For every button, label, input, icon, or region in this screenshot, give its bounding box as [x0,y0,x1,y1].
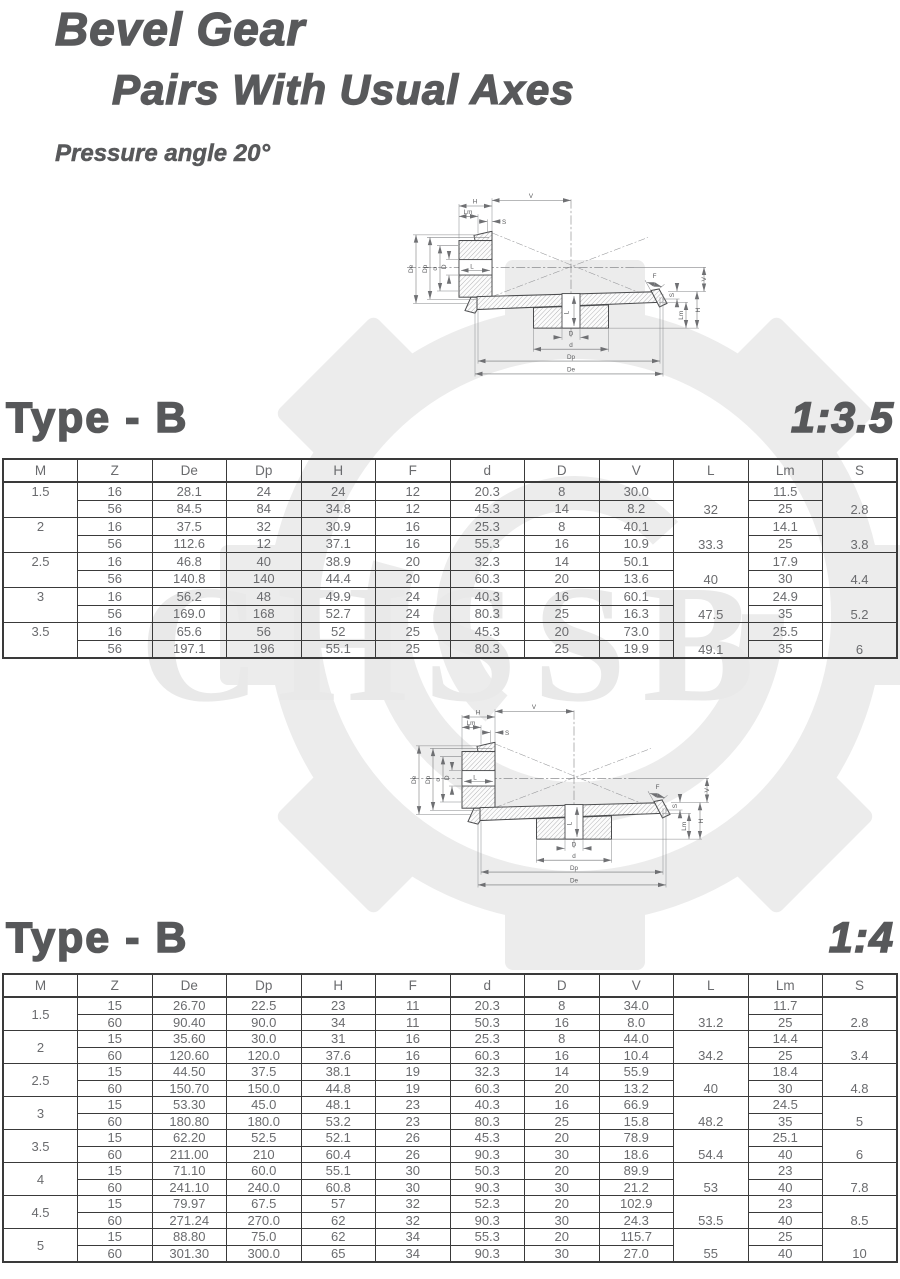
table-row: 5684.58434.81245.3148.225 [3,500,897,518]
cell: 34.0 [599,997,674,1014]
cell: 13.2 [599,1080,674,1097]
catalog-page: { "header": { "title_line1": "Bevel Gear… [0,0,900,1274]
header-row: MZDeDpHFdDVLLmS [3,459,897,482]
cell: 32.3 [450,553,525,571]
cell: 150.70 [152,1080,227,1097]
cell: 25.1 [748,1130,823,1147]
cell: 16 [78,623,153,641]
cell: 55.1 [301,1163,376,1180]
cell: 102.9 [599,1196,674,1213]
cell: 11.7 [748,997,823,1014]
cell: 210 [227,1146,302,1163]
cell: 19 [376,1064,451,1081]
cell: 32 [376,1212,451,1229]
dim-label-s-top: S [502,219,506,226]
dim-label-v-right: V [704,787,711,792]
cell: 24 [376,605,451,623]
dim-label-lm-top: Lm [464,209,473,216]
cell: 28.1 [152,482,227,500]
dim-label-D-left: D [441,264,448,269]
bevel-gear-drawing: L L V H Lm S [401,188,709,394]
cell: 32 [674,482,749,518]
cell: 60 [78,1179,153,1196]
cell: 27.0 [599,1245,674,1262]
column-header-S: S [823,459,898,482]
cell: 90.3 [450,1245,525,1262]
cell: 5 [823,1097,898,1130]
cell: 32.3 [450,1064,525,1081]
cell: 40.3 [450,588,525,606]
cell: 60 [78,1212,153,1229]
cell: 35 [748,640,823,658]
cell: 18.4 [748,1064,823,1081]
cell: 89.9 [599,1163,674,1180]
cell: 62.20 [152,1130,227,1147]
gear-table-1-4: MZDeDpHFdDVLLmS 1.51526.7022.5231120.383… [2,973,898,1263]
cell: 80.3 [450,605,525,623]
cell: 140 [227,570,302,588]
cell: 23 [301,997,376,1014]
cell: 18.6 [599,1146,674,1163]
cell: 197.1 [152,640,227,658]
cell: 45.3 [450,1130,525,1147]
cell: 38.1 [301,1064,376,1081]
column-header-Dp: Dp [227,459,302,482]
cell: 84.5 [152,500,227,518]
cell: 2 [3,518,78,553]
dim-label-de-left: De [411,775,418,784]
cell: 55.3 [450,535,525,553]
cell: 90.3 [450,1146,525,1163]
cell: 75.0 [227,1229,302,1246]
table-row: 4.51579.9767.5573252.320102.953.5238.5 [3,1196,897,1213]
page-title-line2: Pairs With Usual Axes [112,66,575,114]
cell: 16 [376,535,451,553]
page-title-line1: Bevel Gear [55,2,305,56]
cell: 301.30 [152,1245,227,1262]
cell: 45.3 [450,623,525,641]
cell: 35 [748,605,823,623]
gear-section: L [480,800,670,839]
dim-label-lm-top: Lm [467,720,476,727]
cell: 20 [525,623,600,641]
cell: 60 [78,1245,153,1262]
cell: 24 [376,588,451,606]
table-row: 60301.30300.0653490.33027.040 [3,1245,897,1262]
cell: 20 [525,1229,600,1246]
cell: 10.4 [599,1047,674,1064]
cell: 271.24 [152,1212,227,1229]
dim-label-h-right: H [698,818,705,823]
bevel-gear-drawing: L L V H Lm S [404,699,712,905]
cell: 25 [748,1229,823,1246]
cell: 4.8 [823,1064,898,1097]
column-header-Lm: Lm [748,459,823,482]
cell: 19 [376,1080,451,1097]
cell: 8 [525,997,600,1014]
cell: 34 [301,1014,376,1031]
column-header-D: D [525,974,600,997]
cell: 60.4 [301,1146,376,1163]
table-row: 3.51665.656522545.32073.049.125.56 [3,623,897,641]
column-header-De: De [152,974,227,997]
dim-label-f-right: F [656,784,660,791]
cell: 16 [525,1097,600,1114]
cell: 1.5 [3,997,78,1031]
table-row: 1.51526.7022.5231120.3834.031.211.72.8 [3,997,897,1014]
cell: 20 [525,1196,600,1213]
cell: 120.0 [227,1047,302,1064]
cell: 16 [525,535,600,553]
cell: 32 [376,1196,451,1213]
cell: 53.30 [152,1097,227,1114]
cell: 35.60 [152,1031,227,1048]
cell: 53 [674,1163,749,1196]
cell: 15 [78,1130,153,1147]
cell: 65.6 [152,623,227,641]
cell: 48.1 [301,1097,376,1114]
cell: 15 [78,1196,153,1213]
cell: 35 [748,1113,823,1130]
column-header-Z: Z [78,974,153,997]
section-head-1: Type - B 1:3.5 [6,394,894,443]
cell: 55.1 [301,640,376,658]
cell: 60 [78,1146,153,1163]
cell: 80.3 [450,640,525,658]
cell: 8 [525,1031,600,1048]
cell: 40 [748,1212,823,1229]
cell: 40.1 [599,518,674,536]
cell: 55.9 [599,1064,674,1081]
column-header-Lm: Lm [748,974,823,997]
table-row: 21637.53230.91625.3840.133.314.13.8 [3,518,897,536]
column-header-M: M [3,459,78,482]
table-row: 2.51646.84038.92032.31450.14017.94.4 [3,553,897,571]
cell: 2.5 [3,1064,78,1097]
cell: 37.1 [301,535,376,553]
cell: 56 [78,570,153,588]
cell: 32 [227,518,302,536]
cell: 60 [78,1014,153,1031]
dim-label-h-right: H [695,307,702,312]
cell: 44.50 [152,1064,227,1081]
cell: 90.3 [450,1179,525,1196]
cell: 40 [748,1245,823,1262]
cell: 5.2 [823,588,898,623]
cell: 52.5 [227,1130,302,1147]
cell: 30 [748,1080,823,1097]
cell: 23 [376,1097,451,1114]
cell: 211.00 [152,1146,227,1163]
cell: 30 [525,1179,600,1196]
cell: 16 [525,588,600,606]
cell: 16.3 [599,605,674,623]
column-header-d: d [450,974,525,997]
cell: 23 [748,1196,823,1213]
cell: 17.9 [748,553,823,571]
cell: 49.9 [301,588,376,606]
cell: 6 [823,1130,898,1163]
cell: 30 [525,1212,600,1229]
cell: 8 [525,482,600,500]
cell: 12 [376,500,451,518]
cell: 25.3 [450,1031,525,1048]
cell: 50.3 [450,1163,525,1180]
cell: 300.0 [227,1245,302,1262]
cell: 24.3 [599,1212,674,1229]
dim-label-de-bottom: De [570,878,578,885]
cell: 30 [376,1163,451,1180]
cell: 240.0 [227,1179,302,1196]
cell: 19.9 [599,640,674,658]
cell: 30 [748,570,823,588]
cell: 241.10 [152,1179,227,1196]
cell: 23 [376,1113,451,1130]
dim-label-h-top: H [476,710,481,717]
cell: 169.0 [152,605,227,623]
cell: 25 [748,500,823,518]
dim-label-f-right: F [653,273,657,280]
cell: 4.4 [823,553,898,588]
table-row: 56197.119655.12580.32519.935 [3,640,897,658]
cell: 140.8 [152,570,227,588]
cell: 60 [78,1080,153,1097]
dim-label-d-bottom: d [569,342,573,349]
cell: 60.1 [599,588,674,606]
table-row: 3.51562.2052.552.12645.32078.954.425.16 [3,1130,897,1147]
cell: 56 [227,623,302,641]
cell: 67.5 [227,1196,302,1213]
column-header-De: De [152,459,227,482]
cell: 3.5 [3,1130,78,1163]
cell: 50.3 [450,1014,525,1031]
cell: 6 [823,623,898,659]
cell: 52 [301,623,376,641]
cell: 15 [78,1163,153,1180]
table-row: 56169.016852.72480.32516.335 [3,605,897,623]
cell: 53.2 [301,1113,376,1130]
cell: 34.8 [301,500,376,518]
cell: 46.8 [152,553,227,571]
dim-label-lm-right: Lm [681,822,688,831]
cell: 60 [78,1113,153,1130]
cell: 30.0 [227,1031,302,1048]
cell: 3 [3,1097,78,1130]
table-row: 60211.0021060.42690.33018.640 [3,1146,897,1163]
type-heading-1: Type - B [6,394,188,443]
header-row: MZDeDpHFdDVLLmS [3,974,897,997]
cell: 1.5 [3,482,78,518]
cell: 2.8 [823,997,898,1031]
cell: 20.3 [450,997,525,1014]
cell: 3 [3,588,78,623]
cell: 196 [227,640,302,658]
cell: 78.9 [599,1130,674,1147]
cell: 21.2 [599,1179,674,1196]
column-header-F: F [376,459,451,482]
cell: 14.1 [748,518,823,536]
cell: 33.3 [674,518,749,553]
dim-label-dp-bottom: Dp [570,865,578,872]
cell: 88.80 [152,1229,227,1246]
cell: 40 [674,1064,749,1097]
pressure-angle-subtitle: Pressure angle 20° [55,140,270,168]
cell: 24.5 [748,1097,823,1114]
cell: 4 [3,1163,78,1196]
dim-label-pinion-bore: L [473,775,477,782]
dim-label-s-right: S [672,804,679,808]
cell: 8.2 [599,500,674,518]
column-header-V: V [599,459,674,482]
cell: 44.0 [599,1031,674,1048]
cell: 14 [525,500,600,518]
cell: 26 [376,1146,451,1163]
cell: 112.6 [152,535,227,553]
cell: 25 [376,640,451,658]
cell: 56 [78,500,153,518]
cell: 15 [78,1031,153,1048]
cell: 20 [525,570,600,588]
dim-label-d-bottom: d [572,853,576,860]
cell: 16 [376,1031,451,1048]
column-header-V: V [599,974,674,997]
cell: 38.9 [301,553,376,571]
cell: 180.80 [152,1113,227,1130]
cell: 60.3 [450,570,525,588]
cell: 11 [376,997,451,1014]
table-row: 6090.4090.0341150.3168.025 [3,1014,897,1031]
cell: 73.0 [599,623,674,641]
dim-label-de-left: De [408,264,415,273]
table-row: 56140.814044.42060.32013.630 [3,570,897,588]
cell: 16 [78,482,153,500]
cell: 37.5 [227,1064,302,1081]
table-row: 2.51544.5037.538.11932.31455.94018.44.8 [3,1064,897,1081]
cell: 52.3 [450,1196,525,1213]
cell: 44.4 [301,570,376,588]
gear-section: L [477,289,667,328]
dim-label-lm-right: Lm [678,311,685,320]
cell: 25 [748,535,823,553]
table-row: 60241.10240.060.83090.33021.240 [3,1179,897,1196]
cell: 57 [301,1196,376,1213]
cell: 40.3 [450,1097,525,1114]
cell: 30.0 [599,482,674,500]
column-header-F: F [376,974,451,997]
table-body: 1.51628.124241220.3830.03211.52.85684.58… [3,482,897,658]
table-row: 21535.6030.0311625.3844.034.214.43.4 [3,1031,897,1048]
cell: 37.6 [301,1047,376,1064]
column-header-H: H [301,974,376,997]
cell: 26.70 [152,997,227,1014]
cell: 3.8 [823,518,898,553]
cell: 180.0 [227,1113,302,1130]
cell: 14.4 [748,1031,823,1048]
cell: 3.4 [823,1031,898,1064]
table-row: 60180.80180.053.22380.32515.835 [3,1113,897,1130]
cell: 34 [376,1245,451,1262]
table-row: 1.51628.124241220.3830.03211.52.8 [3,482,897,500]
cell: 4.5 [3,1196,78,1229]
cell: 16 [525,1047,600,1064]
cell: 56 [78,605,153,623]
cell: 56 [78,640,153,658]
cell: 8 [525,518,600,536]
dim-label-d-left: d [432,267,439,271]
cell: 15 [78,997,153,1014]
cell: 30 [525,1245,600,1262]
cell: 10.9 [599,535,674,553]
cell: 15 [78,1229,153,1246]
cell: 56 [78,535,153,553]
cell: 84 [227,500,302,518]
cell: 66.9 [599,1097,674,1114]
column-header-Z: Z [78,459,153,482]
cell: 16 [376,518,451,536]
cell: 16 [376,1047,451,1064]
cell: 37.5 [152,518,227,536]
cell: 62 [301,1212,376,1229]
table-row: 51588.8075.0623455.320115.7552510 [3,1229,897,1246]
table-row: 31656.24849.92440.31660.147.524.95.2 [3,588,897,606]
cell: 40 [748,1179,823,1196]
column-header-M: M [3,974,78,997]
cell: 15 [78,1064,153,1081]
cell: 31.2 [674,997,749,1031]
cell: 48.2 [674,1097,749,1130]
table-row: 60120.60120.037.61660.31610.425 [3,1047,897,1064]
cell: 13.6 [599,570,674,588]
cell: 25 [525,1113,600,1130]
cell: 11 [376,1014,451,1031]
cell: 25 [376,623,451,641]
cell: 14 [525,1064,600,1081]
cell: 71.10 [152,1163,227,1180]
table-row: 41571.1060.055.13050.32089.953237.8 [3,1163,897,1180]
column-header-d: d [450,459,525,482]
cell: 49.1 [674,623,749,659]
cell: 44.8 [301,1080,376,1097]
cell: 22.5 [227,997,302,1014]
cell: 20 [525,1163,600,1180]
cell: 31 [301,1031,376,1048]
cell: 60.0 [227,1163,302,1180]
cell: 55 [674,1229,749,1263]
table-row: 60271.24270.0623290.33024.340 [3,1212,897,1229]
cell: 20 [525,1130,600,1147]
dim-label-dp-left: Dp [425,775,432,784]
cell: 62 [301,1229,376,1246]
cell: 16 [525,1014,600,1031]
dim-label-de-bottom: De [567,367,575,374]
cell: 16 [78,588,153,606]
top-dimensions: V H Lm S [462,704,574,750]
dim-label-h-top: H [473,199,478,206]
cell: 30.9 [301,518,376,536]
cell: 40 [674,553,749,588]
cell: 54.4 [674,1130,749,1163]
cell: 56.2 [152,588,227,606]
bevel-gear-diagram-1: L L V H Lm S [401,188,709,394]
cell: 55.3 [450,1229,525,1246]
cell: 11.5 [748,482,823,500]
cell: 16 [78,553,153,571]
cell: 65 [301,1245,376,1262]
page-content: Bevel Gear Pairs With Usual Axes Pressur… [0,0,900,1274]
cell: 20 [525,1080,600,1097]
cell: 25 [525,640,600,658]
column-header-S: S [823,974,898,997]
